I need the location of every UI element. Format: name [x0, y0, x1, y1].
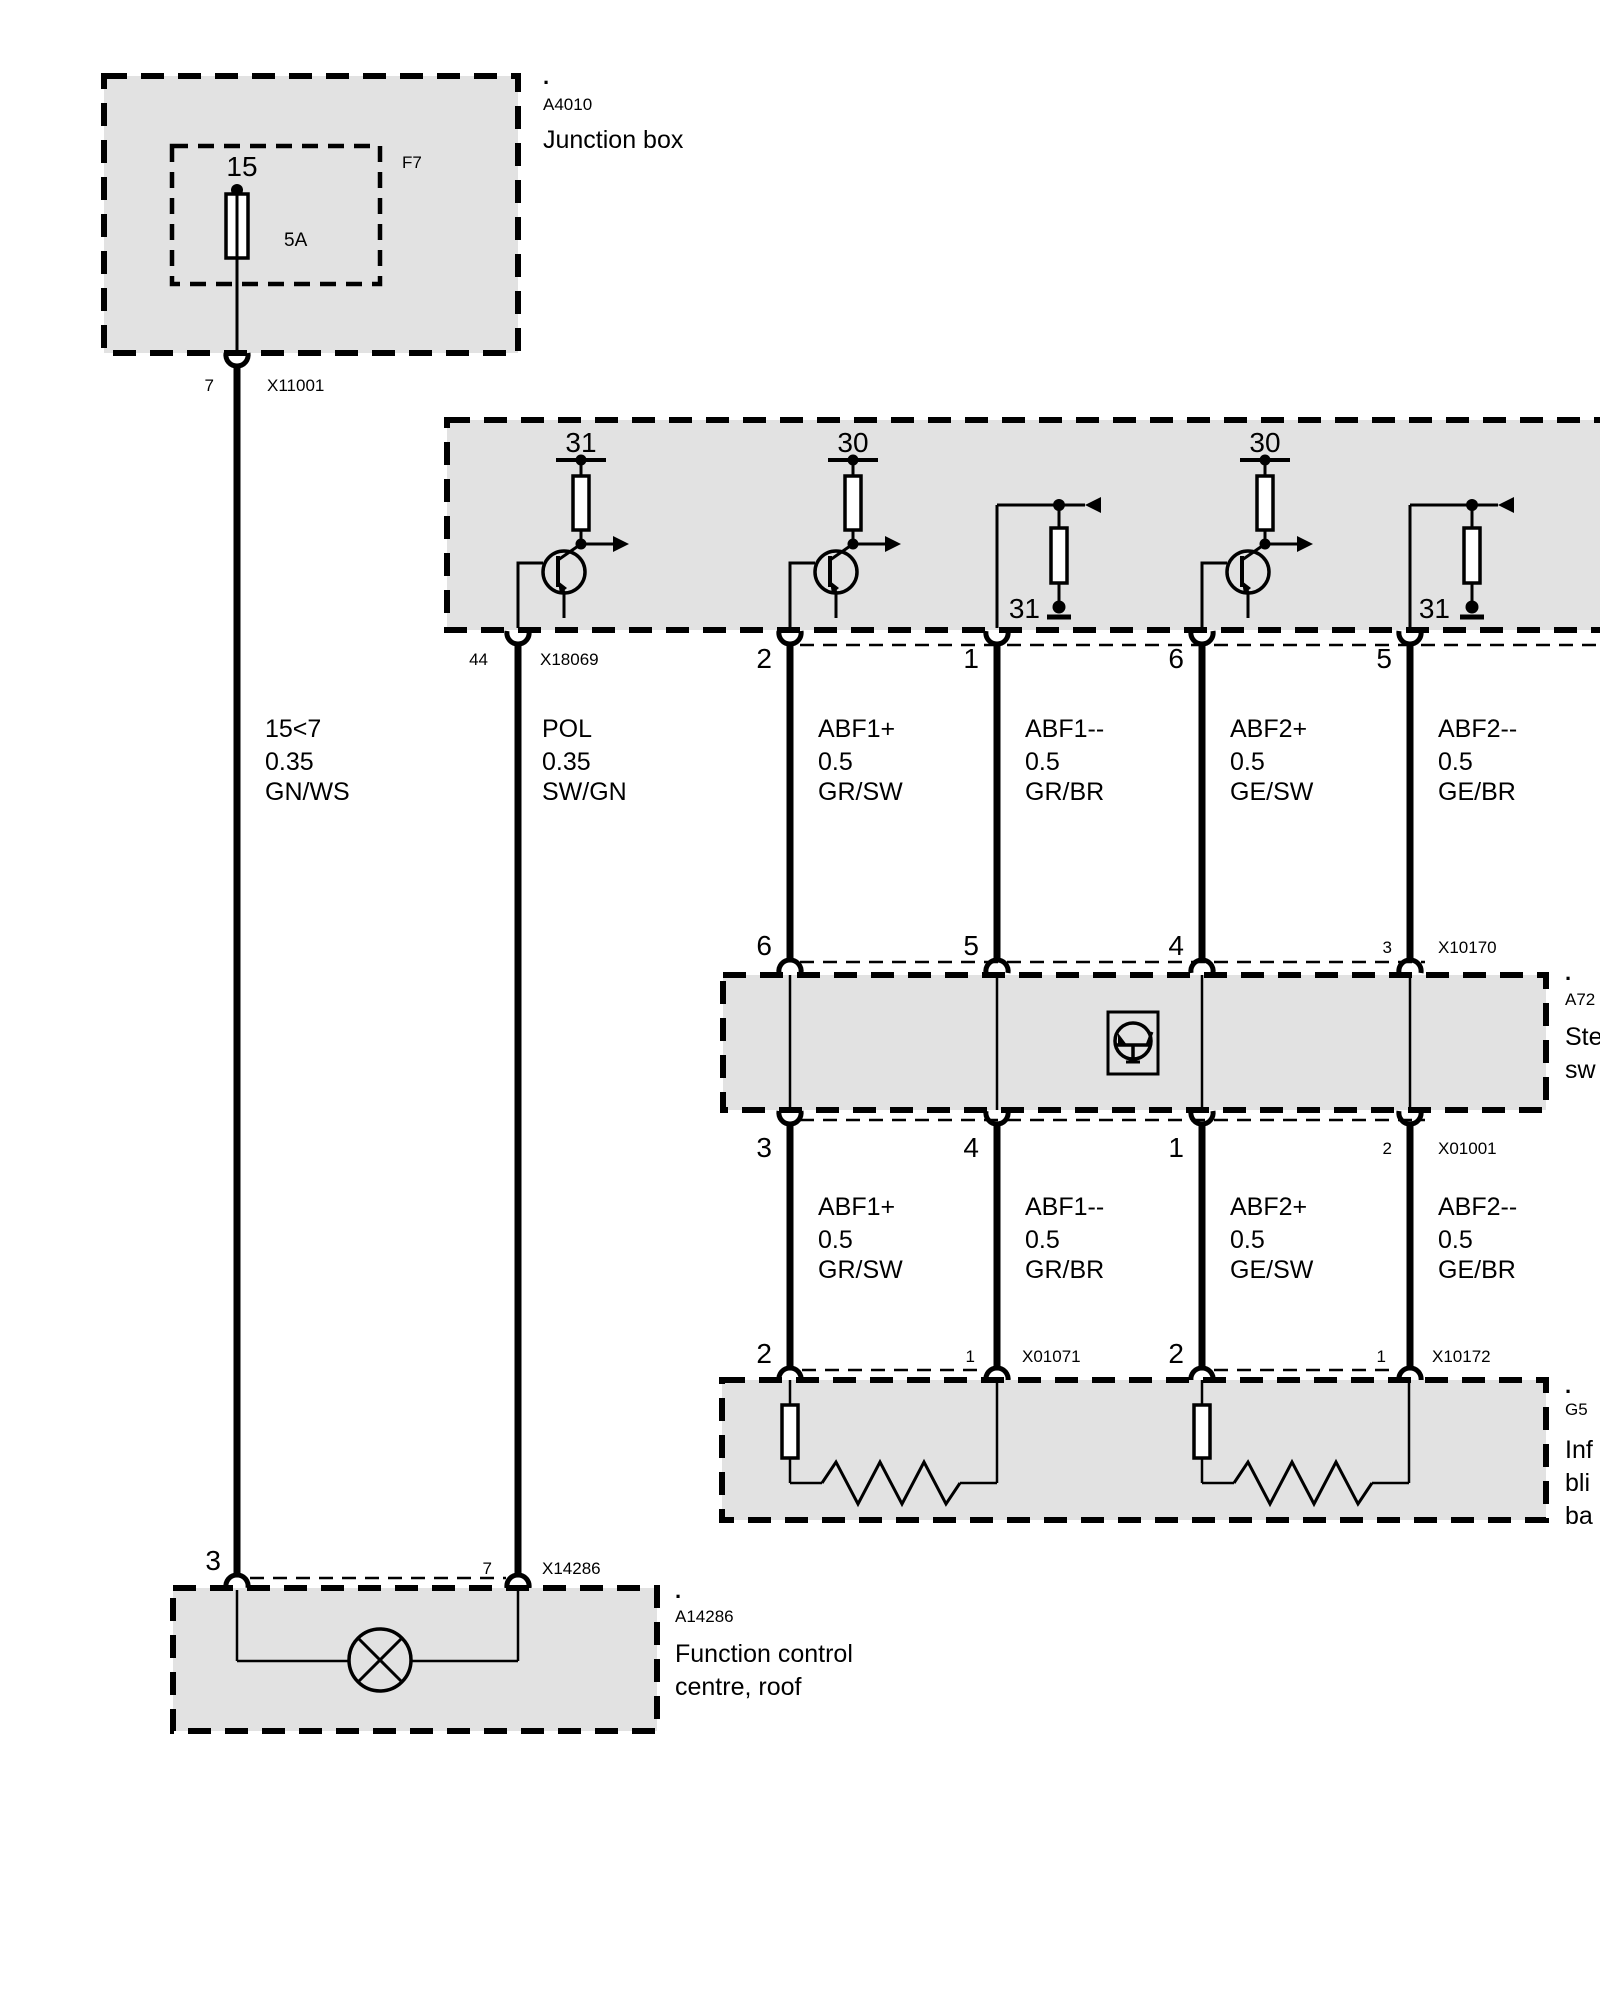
connector-x10170: 6 5 4 3 X10170: [756, 930, 1496, 973]
wire-gauge: 0.5: [818, 1226, 853, 1254]
wire-name: ABF1+: [818, 715, 895, 743]
connector-label: X10170: [1438, 938, 1497, 957]
blind-unit-name-line3: ba: [1565, 1502, 1593, 1530]
pin-number: 1: [966, 1347, 975, 1366]
wire-name: ABF1--: [1025, 715, 1104, 743]
wire-color: SW/GN: [542, 778, 627, 806]
steering-column-switch: . A72 Ste sw: [723, 960, 1600, 1110]
roof-centre-name-line1: Function control: [675, 1640, 853, 1668]
steering-switch-dot: .: [1565, 960, 1571, 985]
connector-fork-icon: [226, 353, 248, 382]
connector-fork-icon: [1191, 1111, 1213, 1140]
connector-fork-icon: [779, 631, 801, 660]
pin-number: 2: [756, 1338, 772, 1369]
pin-number: 3: [1383, 938, 1392, 957]
wire-name: ABF1+: [818, 1193, 895, 1221]
pin-number: 2: [756, 643, 772, 674]
roof-centre-outline: [173, 1588, 657, 1731]
wire-name: POL: [542, 715, 592, 743]
roof-centre-name-line2: centre, roof: [675, 1673, 802, 1701]
roof-centre-ref: A14286: [675, 1607, 734, 1626]
ground-label-31: 31: [1009, 593, 1040, 624]
connector-fork-icon: [507, 631, 529, 660]
junction-box-outline: [104, 76, 518, 353]
blind-unit: . G5 Inf bli ba: [722, 1373, 1593, 1530]
connector-fork-icon: [779, 1352, 801, 1381]
connector-x11001: 7 X11001: [205, 353, 325, 395]
connector-x01071: 2 1 X01071: [756, 1338, 1080, 1381]
connector-fork-icon: [1399, 944, 1421, 973]
wire-gauge: 0.5: [1230, 748, 1265, 776]
connector-label: X10172: [1432, 1347, 1491, 1366]
pin-number: 6: [1168, 643, 1184, 674]
wire-name: 15<7: [265, 715, 321, 743]
wiring-diagram-page: 15 5A F7 . A4010 Junction box 7 X11001 3…: [0, 0, 1600, 2000]
roof-centre-dot: .: [675, 1578, 681, 1603]
connector-fork-icon: [1191, 944, 1213, 973]
wire-gauge: 0.5: [1230, 1226, 1265, 1254]
connector-x18069: 44 X18069 2 1 6 5: [469, 631, 1600, 674]
pin-number: 1: [1168, 1132, 1184, 1163]
pin-number: 3: [205, 1545, 221, 1576]
connector-fork-icon: [507, 1559, 529, 1588]
pin-number: 3: [756, 1132, 772, 1163]
connector-label: X01001: [1438, 1139, 1497, 1158]
steering-switch-ref: A72: [1565, 990, 1595, 1009]
terminal-label-30: 30: [1249, 427, 1280, 458]
wire-gauge: 0.35: [265, 748, 314, 776]
wire-gauge: 0.5: [1025, 1226, 1060, 1254]
fuse-ref-label: F7: [402, 153, 422, 172]
connector-label: X01071: [1022, 1347, 1081, 1366]
wire-gauge: 0.5: [1438, 1226, 1473, 1254]
connector-fork-icon: [986, 1111, 1008, 1140]
connector-label: X11001: [267, 376, 324, 395]
steering-switch-name-line1: Ste: [1565, 1023, 1600, 1051]
junction-box: 15 5A F7 . A4010 Junction box: [104, 64, 684, 353]
blind-unit-ref: G5: [1565, 1400, 1588, 1419]
pin-number: 4: [1168, 930, 1184, 961]
connector-fork-icon: [779, 1111, 801, 1140]
junction-box-name: Junction box: [543, 126, 684, 154]
pin-number: 6: [756, 930, 772, 961]
wire-color: GE/BR: [1438, 1256, 1516, 1284]
connector-fork-icon: [226, 1559, 248, 1588]
wire-name: ABF2+: [1230, 715, 1307, 743]
roof-function-centre: . A14286 Function control centre, roof: [173, 1578, 853, 1731]
pin-number: 7: [205, 376, 214, 395]
pin-number: 1: [1377, 1347, 1386, 1366]
wire-gauge: 0.35: [542, 748, 591, 776]
wire-color: GR/BR: [1025, 778, 1104, 806]
connector-fork-icon: [779, 944, 801, 973]
wire-color: GE/BR: [1438, 778, 1516, 806]
wire-labels-upper: 15<7 0.35 GN/WS POL 0.35 SW/GN ABF1+ 0.5…: [265, 715, 1517, 806]
wire-gauge: 0.5: [1025, 748, 1060, 776]
wire-color: GR/SW: [818, 778, 903, 806]
wiring-diagram: 15 5A F7 . A4010 Junction box 7 X11001 3…: [0, 0, 1600, 2000]
pin-number: 5: [1376, 643, 1392, 674]
pin-number: 5: [963, 930, 979, 961]
pin-number: 44: [469, 650, 488, 669]
wire-name: ABF2+: [1230, 1193, 1307, 1221]
connector-label: X14286: [542, 1559, 601, 1578]
connector-fork-icon: [986, 944, 1008, 973]
connector-fork-icon: [1399, 1111, 1421, 1140]
connector-fork-icon: [1191, 1352, 1213, 1381]
connector-fork-icon: [986, 1352, 1008, 1381]
control-module: 31 30 30 31 31: [447, 420, 1600, 630]
wire-gauge: 0.5: [818, 748, 853, 776]
connector-fork-icon: [1399, 1352, 1421, 1381]
wire-gauge: 0.5: [1438, 748, 1473, 776]
pin-number: 1: [963, 643, 979, 674]
pin-number: 7: [483, 1559, 492, 1578]
steering-switch-name-line2: sw: [1565, 1056, 1597, 1084]
wire-name: ABF2--: [1438, 1193, 1517, 1221]
connector-label: X18069: [540, 650, 599, 669]
connector-x10172: 2 1 X10172: [1168, 1338, 1490, 1381]
pin-number: 2: [1168, 1338, 1184, 1369]
connector-x01001: 3 4 1 2 X01001: [756, 1111, 1496, 1163]
blind-unit-outline: [722, 1380, 1546, 1520]
blind-unit-dot: .: [1565, 1373, 1571, 1398]
wire-color: GE/SW: [1230, 778, 1314, 806]
terminal-label-31: 31: [565, 427, 596, 458]
wire-color: GN/WS: [265, 778, 350, 806]
fuse-rating-label: 5A: [284, 230, 308, 251]
wire-name: ABF2--: [1438, 715, 1517, 743]
blind-unit-name-line2: bli: [1565, 1469, 1590, 1497]
junction-box-ref: A4010: [543, 95, 592, 114]
terminal-label-30: 30: [837, 427, 868, 458]
wire-color: GR/BR: [1025, 1256, 1104, 1284]
wire-color: GE/SW: [1230, 1256, 1314, 1284]
junction-box-dot: .: [543, 64, 549, 89]
pin-number: 2: [1383, 1139, 1392, 1158]
ground-label-31: 31: [1419, 593, 1450, 624]
wire-color: GR/SW: [818, 1256, 903, 1284]
connector-x14286: 3 7 X14286: [205, 1545, 600, 1588]
wire-name: ABF1--: [1025, 1193, 1104, 1221]
pin-number: 4: [963, 1132, 979, 1163]
steering-wheel-icon: [1108, 1012, 1158, 1074]
fuse-terminal-label: 15: [226, 151, 257, 182]
blind-unit-name-line1: Inf: [1565, 1436, 1593, 1464]
